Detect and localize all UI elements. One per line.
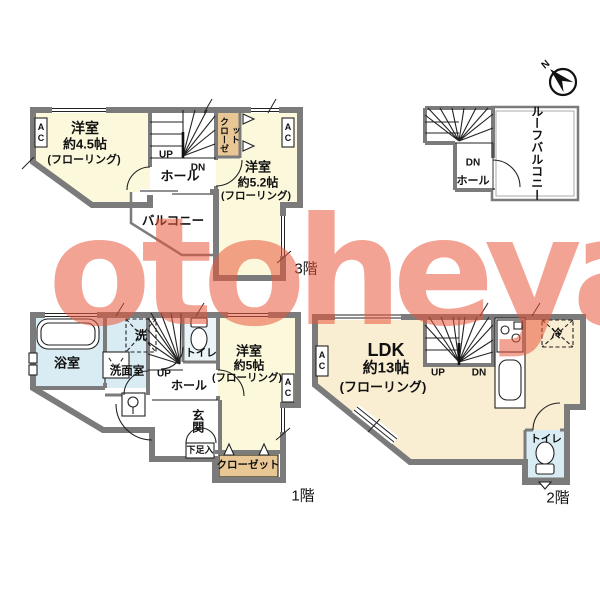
floor3-room2-name: 洋室 bbox=[245, 161, 271, 176]
floor1-room-note: (フローリング) bbox=[212, 373, 282, 385]
floor3-up-label: UP bbox=[159, 149, 173, 160]
floor1-shoebox-label: 下足入 bbox=[186, 445, 213, 455]
floor3-ac-right-label: AC bbox=[283, 122, 293, 144]
compass-icon bbox=[550, 69, 576, 95]
floor2-name: 2階 bbox=[546, 491, 569, 508]
floor2-ldk-note: (フローリング) bbox=[340, 381, 427, 396]
floor3-room2-size: 約5.2帖 bbox=[238, 176, 279, 189]
floor2-toilet-icon bbox=[536, 442, 554, 489]
floor1-washroom-label: 洗面室 bbox=[110, 366, 145, 379]
floor1-room-size: 約5帖 bbox=[234, 359, 265, 372]
floor1-closet-label: クローゼット bbox=[217, 460, 280, 472]
floor2-dn-label: DN bbox=[472, 367, 486, 378]
floor1-toilet-label: トイレ bbox=[185, 348, 217, 360]
floor3-room1-size: 約4.5帖 bbox=[63, 138, 107, 153]
floor1-up-label: UP bbox=[157, 368, 171, 379]
floor3-room2-note: (フローリング) bbox=[221, 191, 291, 203]
floor1-toilet-icon bbox=[191, 318, 207, 350]
bath-fixture-1 bbox=[29, 353, 37, 363]
kitchen-counter bbox=[495, 318, 525, 408]
floorplan-page: 洋室 約4.5帖 (フローリング) AC AC UP DN クローゼット ホール… bbox=[0, 0, 600, 600]
floor2-fridge-label: 冷 bbox=[552, 328, 563, 340]
floor2-ac-label: AC bbox=[317, 350, 327, 372]
floor3-room1-name: 洋室 bbox=[71, 121, 99, 137]
hand-basin-icon bbox=[122, 393, 145, 416]
floor2-plan bbox=[315, 303, 583, 489]
floor2-up-label: UP bbox=[431, 367, 445, 378]
roof-plan bbox=[425, 69, 578, 200]
floor1-hall-label: ホール bbox=[171, 379, 207, 392]
floor2-ldk-size: 約13帖 bbox=[363, 361, 410, 378]
roof-balcony-label: ルーフバルコニー bbox=[529, 105, 542, 201]
roof-hall-label: ホール bbox=[457, 175, 490, 187]
floor2-ldk-name: LDK bbox=[368, 340, 405, 360]
floor2-toilet-label: トイレ bbox=[530, 434, 562, 446]
floor1-entrance-label: 玄関 bbox=[190, 409, 203, 433]
floor1-ac-label: AC bbox=[283, 377, 293, 399]
floor3-balcony-label: バルコニー bbox=[142, 214, 204, 228]
bath-fixture-2 bbox=[29, 365, 37, 375]
floor3-closet-label: クローゼット bbox=[218, 114, 240, 156]
floor3-hall-label: ホール bbox=[160, 170, 199, 185]
roof-dn-label: DN bbox=[466, 157, 480, 168]
floor1-name: 1階 bbox=[291, 489, 314, 506]
bathtub-icon bbox=[37, 319, 99, 349]
floor1-plan bbox=[29, 303, 298, 480]
floor1-room-name: 洋室 bbox=[236, 345, 262, 360]
floor3-name: 3階 bbox=[294, 262, 317, 279]
floorplan-drawing bbox=[0, 0, 600, 600]
floor3-ac-left-label: AC bbox=[36, 122, 46, 144]
floor1-bath-label: 浴室 bbox=[54, 357, 80, 372]
floor1-washer-label: 洗 bbox=[135, 329, 147, 342]
floor3-room1-note: (フローリング) bbox=[47, 154, 120, 166]
